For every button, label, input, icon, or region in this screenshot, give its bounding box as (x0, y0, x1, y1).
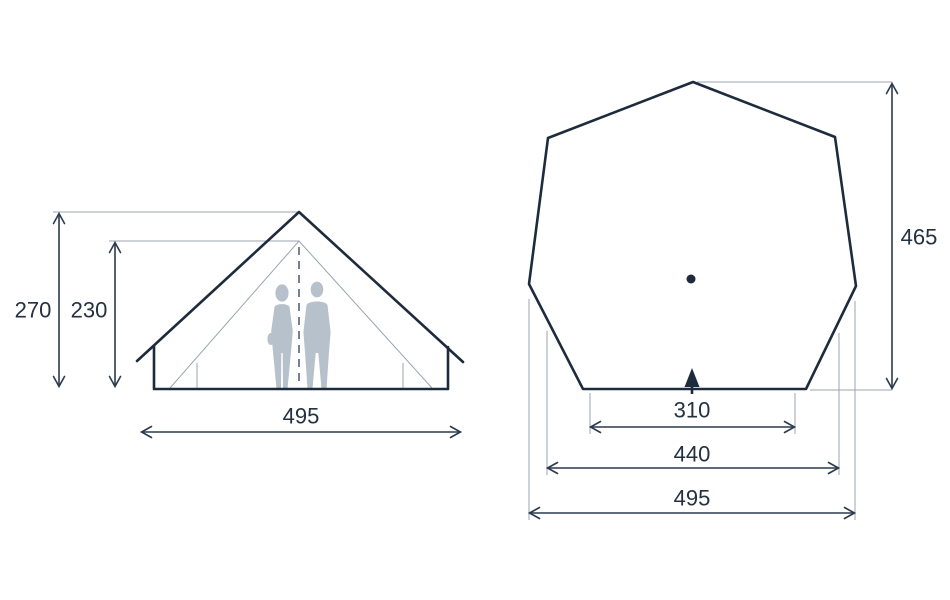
mid-width-label: 440 (674, 442, 711, 467)
center-pole-dot (687, 275, 696, 284)
man-silhouette (303, 282, 330, 389)
diagram-svg: 270 230 495 465 310 (0, 0, 950, 600)
front-elevation-view: 270 230 495 (15, 212, 463, 432)
shoulder-bag (267, 333, 274, 345)
inner-height-label: 230 (71, 298, 108, 323)
tent-walls-and-base (154, 346, 448, 389)
total-height-label: 270 (15, 298, 52, 323)
floor-plan-view: 465 310 440 495 (529, 82, 937, 520)
woman-silhouette (267, 284, 292, 389)
door-width-label: 310 (674, 398, 711, 423)
tent-roof-outline (137, 212, 463, 362)
max-width-label: 495 (674, 486, 711, 511)
front-width-label: 495 (283, 404, 320, 429)
depth-label: 465 (901, 225, 938, 250)
inner-tent-slope-lines (170, 241, 432, 388)
floorplan-outline (529, 82, 856, 389)
tent-dimensions-diagram: 270 230 495 465 310 (0, 0, 950, 600)
